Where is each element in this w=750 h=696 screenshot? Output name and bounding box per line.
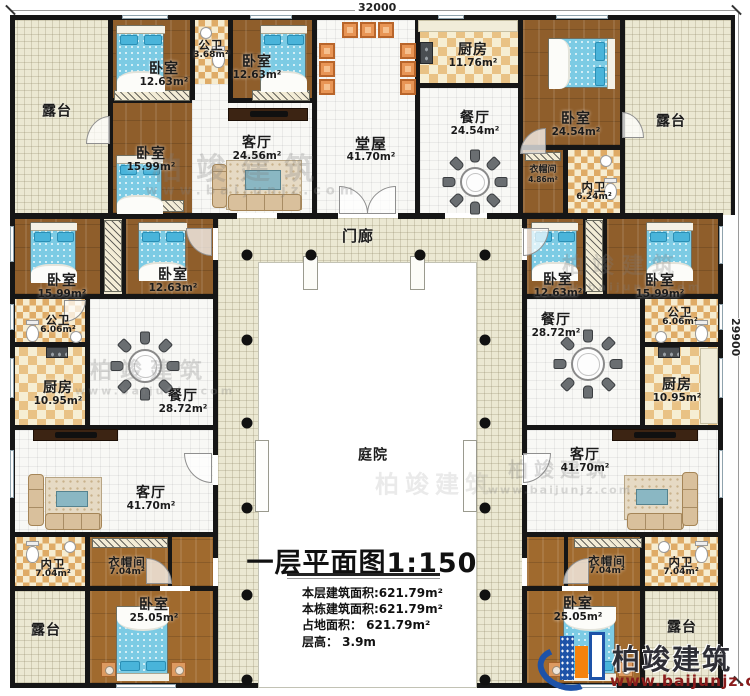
- window-icon: [719, 358, 723, 398]
- label-bath-top: 公卫3.68m²: [193, 39, 229, 61]
- pillow: [34, 232, 51, 242]
- room-area: 24.54m²: [552, 127, 601, 138]
- chair-icon: [495, 177, 508, 187]
- logo-orange-block-icon: [575, 646, 588, 678]
- label-terrace-tr: 露台: [656, 114, 686, 129]
- label-courtyard: 庭院: [358, 448, 388, 463]
- watermark-url: www.baijunjz.com: [75, 385, 235, 398]
- armchair-icon: [319, 43, 335, 59]
- window-icon: [10, 358, 14, 398]
- room-area: 15.99m²: [127, 162, 176, 173]
- room-area: 7.04m²: [108, 568, 146, 578]
- room-name: 露台: [667, 620, 697, 635]
- pillow: [57, 232, 74, 242]
- window-icon: [250, 15, 292, 19]
- stove-icon: [420, 42, 433, 64]
- label-bath-left: 公卫6.06m²: [40, 314, 76, 336]
- pillow: [673, 232, 690, 242]
- wall: [522, 586, 562, 591]
- room-area: 12.63m²: [140, 77, 189, 88]
- room-area: 25.05m²: [554, 612, 603, 623]
- sofa-icon: [28, 474, 44, 526]
- room-name: 卧室: [636, 274, 685, 289]
- label-bedroom-lw1: 卧室15.99m²: [38, 274, 87, 300]
- armchair-icon: [319, 79, 335, 95]
- window-icon: [10, 226, 14, 262]
- column-dot-icon: [242, 250, 253, 261]
- room-name: 卧室: [127, 147, 176, 162]
- headboard: [647, 223, 693, 231]
- room-area: 41.70m²: [347, 152, 396, 163]
- room-name: 卧室: [534, 273, 583, 288]
- label-bedroom-tl1: 卧室12.63m²: [140, 62, 189, 88]
- pillow: [287, 35, 304, 45]
- chair-icon: [610, 359, 623, 369]
- kitchen-counter: [418, 20, 518, 32]
- wall: [213, 485, 218, 558]
- armchair-icon: [378, 22, 394, 38]
- wall: [645, 342, 721, 347]
- room-area: 6.24m²: [576, 193, 612, 203]
- coffee-table-icon: [636, 489, 668, 505]
- nightstand-icon: [101, 662, 116, 677]
- porch-step: [410, 256, 425, 290]
- window-icon: [116, 684, 176, 688]
- logo-building-icon: [560, 636, 574, 680]
- room-area: 12.63m²: [149, 283, 198, 294]
- label-terrace-bl: 露台: [31, 623, 61, 638]
- watermark-url: www.baijunjz.com: [146, 184, 359, 199]
- room-name: 庭院: [358, 448, 388, 463]
- room-area: 41.70m²: [127, 501, 176, 512]
- pillow: [595, 42, 605, 61]
- label-bedroom-rw2: 卧室15.99m²: [636, 274, 685, 300]
- pillow: [142, 232, 160, 242]
- room-name: 露台: [656, 114, 686, 129]
- wall: [518, 20, 523, 213]
- room-area: 15.99m²: [38, 289, 87, 300]
- room-name: 厨房: [34, 381, 83, 396]
- dimension-right-value: 29900: [726, 318, 745, 356]
- room-name: 堂屋: [347, 136, 396, 152]
- room-name: 露台: [31, 623, 61, 638]
- label-bedroom-br: 卧室25.05m²: [554, 597, 603, 623]
- armchair-icon: [400, 79, 416, 95]
- window-icon: [719, 450, 723, 498]
- label-bedroom-tl2: 卧室12.63m²: [233, 55, 282, 81]
- stone-bench: [255, 440, 269, 512]
- column-dot-icon: [415, 250, 426, 261]
- room-area: 10.95m²: [653, 393, 702, 404]
- chair-icon: [470, 150, 480, 163]
- chair-icon: [443, 177, 456, 187]
- headboard: [139, 223, 187, 231]
- column-dot-icon: [242, 675, 253, 686]
- headboard: [31, 223, 77, 231]
- stat-floor-area: 本层建筑面积:621.79m²: [302, 584, 443, 601]
- label-kitchen-top: 厨房11.76m²: [449, 43, 498, 69]
- room-area: 28.72m²: [159, 404, 208, 415]
- room-name: 餐厅: [532, 313, 581, 328]
- pillow: [264, 35, 281, 45]
- label-kitchen-left: 厨房10.95m²: [34, 381, 83, 407]
- nightstand-icon: [171, 662, 186, 677]
- armchair-icon: [400, 61, 416, 77]
- label-kitchen-right: 厨房10.95m²: [653, 378, 702, 404]
- wardrobe-icon: [574, 538, 642, 548]
- wall: [85, 532, 90, 683]
- room-name: 露台: [42, 104, 72, 119]
- room-name: 客厅: [561, 448, 610, 463]
- sofa-icon: [627, 513, 684, 530]
- armchair-icon: [342, 22, 358, 38]
- column-dot-icon: [480, 675, 491, 686]
- label-bath-tr: 内卫6.24m²: [576, 181, 612, 203]
- room-area: 25.05m²: [130, 613, 179, 624]
- room-name: 餐厅: [451, 111, 500, 126]
- title-rule-thin: [287, 578, 440, 579]
- room-name: 卧室: [38, 274, 87, 289]
- watermark-url: www.baijunjz.com: [488, 484, 632, 497]
- room-area: 15.99m²: [636, 289, 685, 300]
- room-area: 12.63m²: [233, 70, 282, 81]
- window-icon: [122, 15, 168, 19]
- dining-table-icon: [460, 167, 490, 197]
- window-icon: [719, 226, 723, 264]
- column-dot-icon: [242, 590, 253, 601]
- toilet-icon: [26, 325, 39, 342]
- title-rule: [287, 573, 440, 576]
- label-closet-br: 衣帽间7.04m²: [588, 555, 626, 577]
- label-bath-br: 内卫7.04m²: [663, 556, 699, 578]
- window-icon: [556, 15, 608, 19]
- label-main-hall: 堂屋41.70m²: [347, 136, 396, 164]
- wall: [277, 213, 338, 219]
- room-name: 厨房: [449, 43, 498, 58]
- wardrobe-icon: [92, 538, 168, 548]
- armchair-icon: [319, 61, 335, 77]
- tv-screen-icon: [250, 111, 288, 117]
- armchair-icon: [400, 43, 416, 59]
- room-area: 7.04m²: [588, 567, 626, 577]
- room-name: 卧室: [130, 598, 179, 613]
- column-dot-icon: [242, 335, 253, 346]
- wall: [640, 297, 645, 428]
- pillow: [144, 35, 162, 45]
- chair-icon: [583, 386, 593, 399]
- room-area: 41.70m²: [561, 463, 610, 474]
- label-bedroom-lw2: 卧室12.63m²: [149, 268, 198, 294]
- wall: [10, 15, 734, 20]
- window-icon: [10, 450, 14, 498]
- pillow: [166, 232, 184, 242]
- floor-plan-canvas: 露台 卧室12.63m² 公卫3.68m² 卧室12.63m² 卧室15.99m…: [0, 0, 750, 696]
- column-dot-icon: [242, 503, 253, 514]
- column-dot-icon: [306, 250, 317, 261]
- label-closet-tr: 衣帽间4.86m²: [528, 166, 558, 184]
- room-name: 门廊: [342, 228, 374, 244]
- wall: [522, 586, 527, 683]
- wall: [522, 218, 527, 228]
- wall: [731, 15, 735, 215]
- headboard: [117, 26, 165, 34]
- label-terrace-tl: 露台: [42, 104, 72, 119]
- window-icon: [719, 304, 723, 330]
- label-terrace-br: 露台: [667, 620, 697, 635]
- column-dot-icon: [480, 590, 491, 601]
- wall: [522, 532, 723, 537]
- pillow: [650, 232, 667, 242]
- armchair-icon: [360, 22, 376, 38]
- wall: [588, 586, 721, 591]
- room-name: 卧室: [233, 55, 282, 70]
- headboard: [607, 39, 615, 89]
- label-living-bl: 客厅41.70m²: [127, 486, 176, 512]
- logo-url-text: www.baijunjz.com: [610, 672, 750, 690]
- room-area: 28.72m²: [532, 328, 581, 339]
- logo-building-outline-icon: [589, 632, 605, 680]
- chair-icon: [140, 332, 150, 345]
- stove-icon: [46, 347, 68, 358]
- room-name: 客厅: [127, 486, 176, 501]
- chair-icon: [470, 202, 480, 215]
- column-dot-icon: [480, 250, 491, 261]
- kitchen-counter: [700, 348, 718, 424]
- label-bedroom-tl3: 卧室15.99m²: [127, 147, 176, 173]
- wall: [213, 586, 218, 683]
- bed-icon: [548, 38, 614, 88]
- label-bath-bl: 内卫7.04m²: [35, 558, 71, 580]
- room-name: 餐厅: [159, 389, 208, 404]
- stat-building-area: 本栋建筑面积:621.79m²: [302, 600, 443, 617]
- headboard: [261, 26, 307, 34]
- sink-icon: [64, 541, 76, 553]
- room-area: 24.56m²: [233, 151, 282, 162]
- hallway-strip: [192, 84, 230, 100]
- stove-icon: [658, 347, 680, 358]
- pillow: [120, 35, 138, 45]
- coffee-table-icon: [56, 491, 88, 507]
- wall: [10, 15, 15, 683]
- room-area: 12.63m²: [534, 288, 583, 299]
- room-area: 7.04m²: [35, 570, 71, 580]
- chair-icon: [583, 330, 593, 343]
- label-bedroom-rw1: 卧室12.63m²: [534, 273, 583, 299]
- pillow: [558, 232, 575, 242]
- stat-storey-height: 层高： 3.9m: [302, 633, 376, 650]
- label-dining-left: 餐厅28.72m²: [159, 389, 208, 415]
- room-name: 客厅: [233, 136, 282, 151]
- room-area: 4.86m²: [528, 176, 558, 184]
- wardrobe-icon: [104, 220, 122, 292]
- wall: [190, 586, 216, 591]
- plan-layer: 露台 卧室12.63m² 公卫3.68m² 卧室12.63m² 卧室15.99m…: [0, 0, 750, 696]
- wall: [418, 83, 518, 88]
- label-living-br: 客厅41.70m²: [561, 448, 610, 474]
- watermark-brand: 柏竣建筑: [90, 353, 210, 385]
- label-bath-right: 公卫6.06m²: [662, 306, 698, 328]
- pillow: [146, 661, 166, 671]
- room-name: 卧室: [554, 597, 603, 612]
- tv-screen-icon: [55, 432, 97, 438]
- label-porch: 门廊: [342, 228, 374, 244]
- pillow: [595, 67, 605, 86]
- wall: [122, 218, 126, 294]
- wall: [213, 218, 218, 228]
- headboard: [117, 673, 169, 681]
- label-bedroom-tr: 卧室24.54m²: [552, 112, 601, 138]
- room-name: 厨房: [653, 378, 702, 393]
- room-name: 卧室: [140, 62, 189, 77]
- wall: [10, 532, 216, 537]
- column-dot-icon: [480, 503, 491, 514]
- label-closet-bl: 衣帽间7.04m²: [108, 556, 146, 578]
- column-dot-icon: [242, 418, 253, 429]
- sofa-icon: [682, 472, 698, 526]
- sofa-icon: [45, 513, 102, 530]
- chair-icon: [554, 359, 567, 369]
- label-dining-top: 餐厅24.54m²: [451, 111, 500, 137]
- label-bedroom-bl: 卧室25.05m²: [130, 598, 179, 624]
- dining-table-icon: [571, 347, 605, 381]
- room-area: 24.54m²: [451, 126, 500, 137]
- wall: [563, 150, 568, 213]
- sink-icon: [658, 541, 670, 553]
- window-icon: [438, 15, 464, 19]
- column-dot-icon: [480, 418, 491, 429]
- room-area: 10.95m²: [34, 396, 83, 407]
- window-icon: [10, 304, 14, 330]
- pillow: [120, 661, 140, 671]
- room-area: 7.04m²: [663, 568, 699, 578]
- tv-screen-icon: [634, 432, 676, 438]
- watermark-brand: 柏竣建筑: [375, 465, 495, 500]
- room-area: 6.06m²: [662, 318, 698, 328]
- stat-land-area: 占地面积： 621.79m²: [302, 616, 430, 633]
- room-name: 卧室: [552, 112, 601, 127]
- column-dot-icon: [480, 335, 491, 346]
- wall: [398, 213, 445, 219]
- sink-icon: [655, 331, 667, 343]
- label-living-tl: 客厅24.56m²: [233, 136, 282, 162]
- room-name: 卧室: [149, 268, 198, 283]
- room-area: 3.68m²: [193, 51, 229, 61]
- room-area: 11.76m²: [449, 58, 498, 69]
- sink-icon: [600, 155, 612, 167]
- blanket: [549, 39, 570, 89]
- label-dining-right: 餐厅28.72m²: [532, 313, 581, 339]
- porch-step: [303, 256, 318, 290]
- room-area: 6.06m²: [40, 326, 76, 336]
- dimension-top-value: 32000: [355, 1, 399, 14]
